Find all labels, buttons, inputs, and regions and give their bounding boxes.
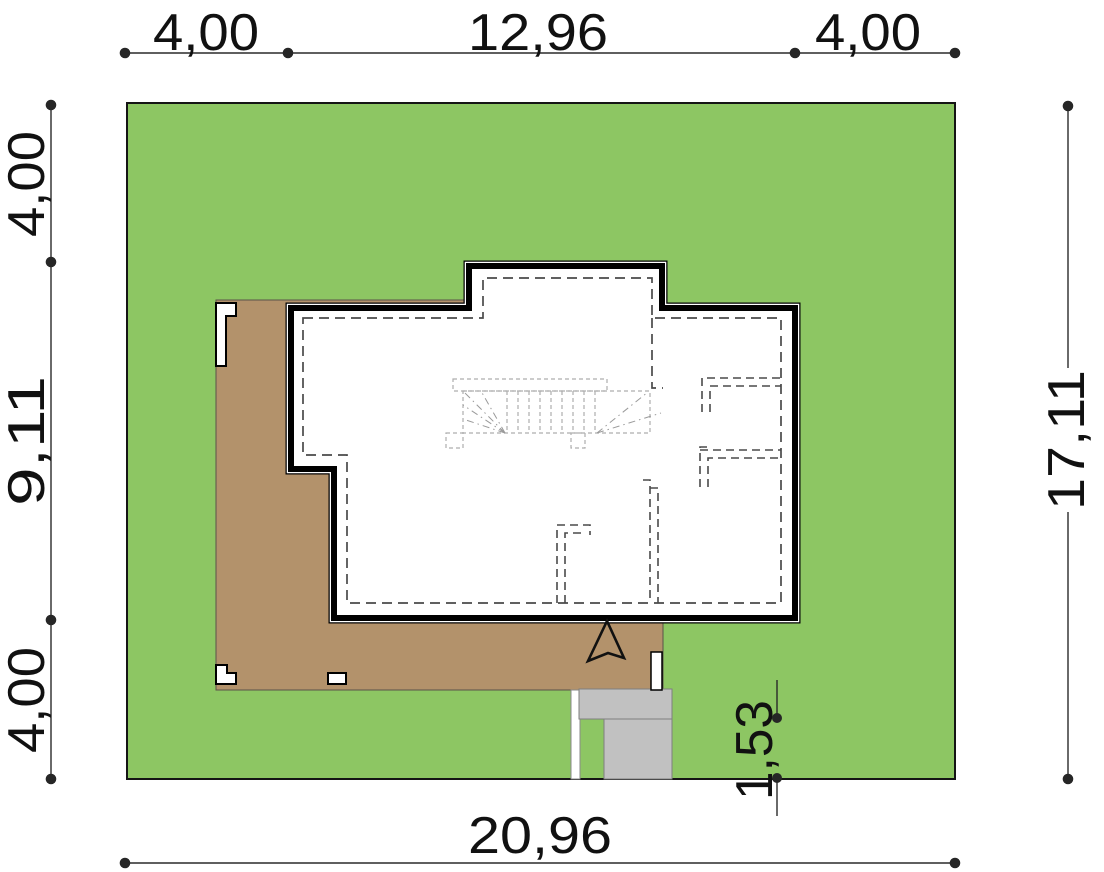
dim-label-left-middle: 9,11 <box>0 376 56 506</box>
driveway-lower <box>604 719 672 779</box>
dim-label-top-right: 4,00 <box>815 4 921 62</box>
dim-label-left-top: 4,00 <box>0 131 56 237</box>
pillar-bottom-middle <box>328 673 346 684</box>
dim-label-top-middle: 12,96 <box>468 4 608 62</box>
terrace-step-right <box>651 652 662 690</box>
driveway-upper <box>579 689 672 719</box>
dim-label-right-total: 17,11 <box>1038 370 1096 510</box>
site-plan: 4,00 12,96 4,00 4,00 9,11 4,00 17,11 20,… <box>0 0 1104 872</box>
dim-label-left-bottom: 4,00 <box>0 647 56 753</box>
dim-label-top-left: 4,00 <box>153 4 259 62</box>
dim-label-bottom-total: 20,96 <box>468 807 612 865</box>
dim-label-driveway-depth: 1,53 <box>726 700 784 800</box>
